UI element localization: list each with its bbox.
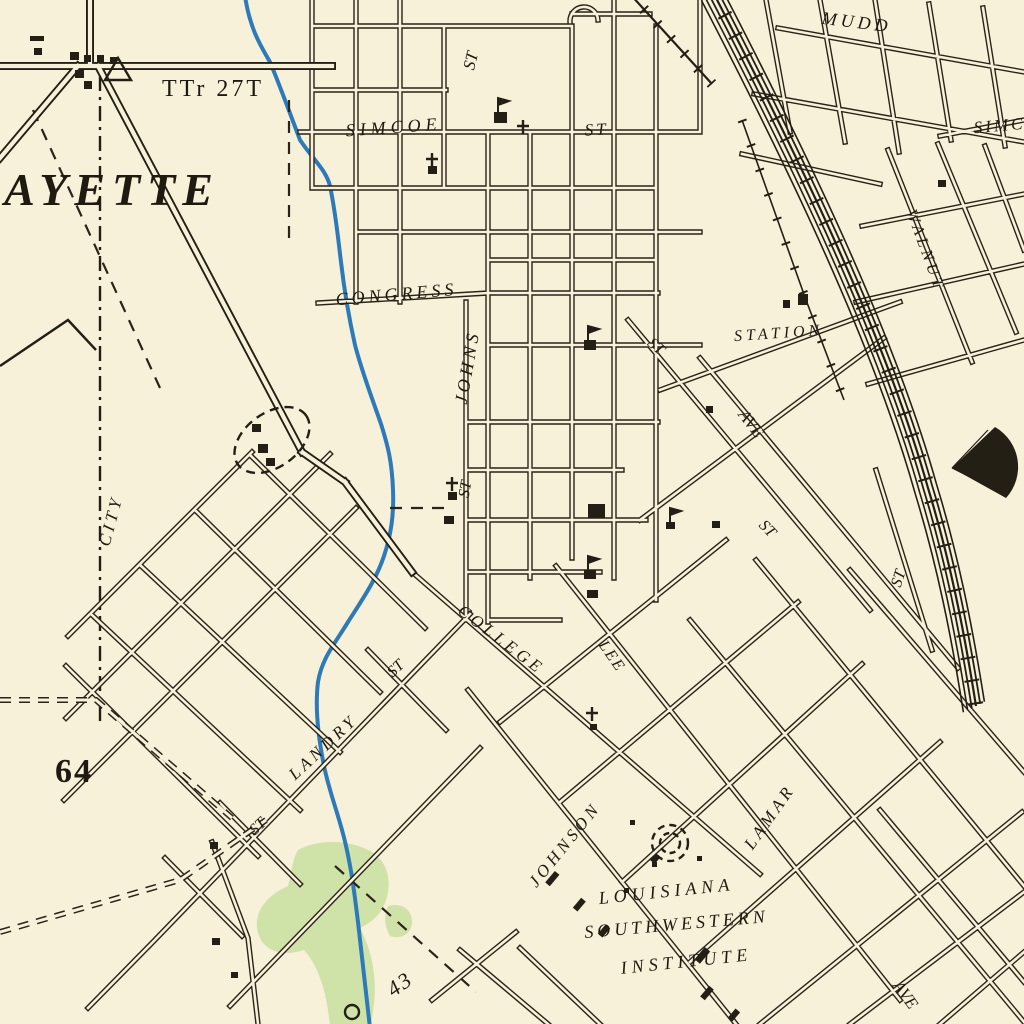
- building: [84, 55, 91, 62]
- building: [231, 972, 238, 978]
- building: [266, 458, 275, 466]
- place-label-lafayette: AYETTE: [1, 164, 220, 215]
- building: [75, 70, 84, 78]
- building: [590, 724, 597, 730]
- paper-background: [0, 0, 1024, 1024]
- building: [252, 424, 261, 432]
- building: [938, 180, 946, 187]
- street-label-simcoe-west-st: ST: [584, 119, 609, 139]
- building: [97, 55, 104, 62]
- building: [210, 842, 218, 849]
- building: [588, 504, 605, 518]
- building: [697, 856, 702, 861]
- building: [212, 938, 220, 945]
- building: [428, 166, 437, 174]
- map-sheet: AYETTE TTr 27T SIMCOE ST ST MUDD SIMC WA…: [0, 0, 1024, 1024]
- building: [584, 340, 596, 350]
- survey-note-label: TTr 27T: [162, 76, 264, 102]
- building: [630, 820, 635, 825]
- building: [84, 81, 92, 89]
- building: [34, 48, 42, 55]
- building: [587, 590, 598, 598]
- building: [444, 516, 454, 524]
- building: [666, 522, 675, 529]
- building: [258, 444, 268, 453]
- building: [652, 862, 657, 867]
- building: [706, 406, 713, 413]
- station-building: [798, 294, 808, 305]
- building: [584, 570, 596, 579]
- building: [494, 112, 507, 123]
- building: [70, 52, 79, 60]
- building: [783, 300, 790, 308]
- route-number-64: 64: [55, 753, 93, 790]
- topo-map-canvas: AYETTE TTr 27T SIMCOE ST ST MUDD SIMC WA…: [0, 0, 1024, 1024]
- building: [712, 521, 720, 528]
- building: [30, 36, 44, 41]
